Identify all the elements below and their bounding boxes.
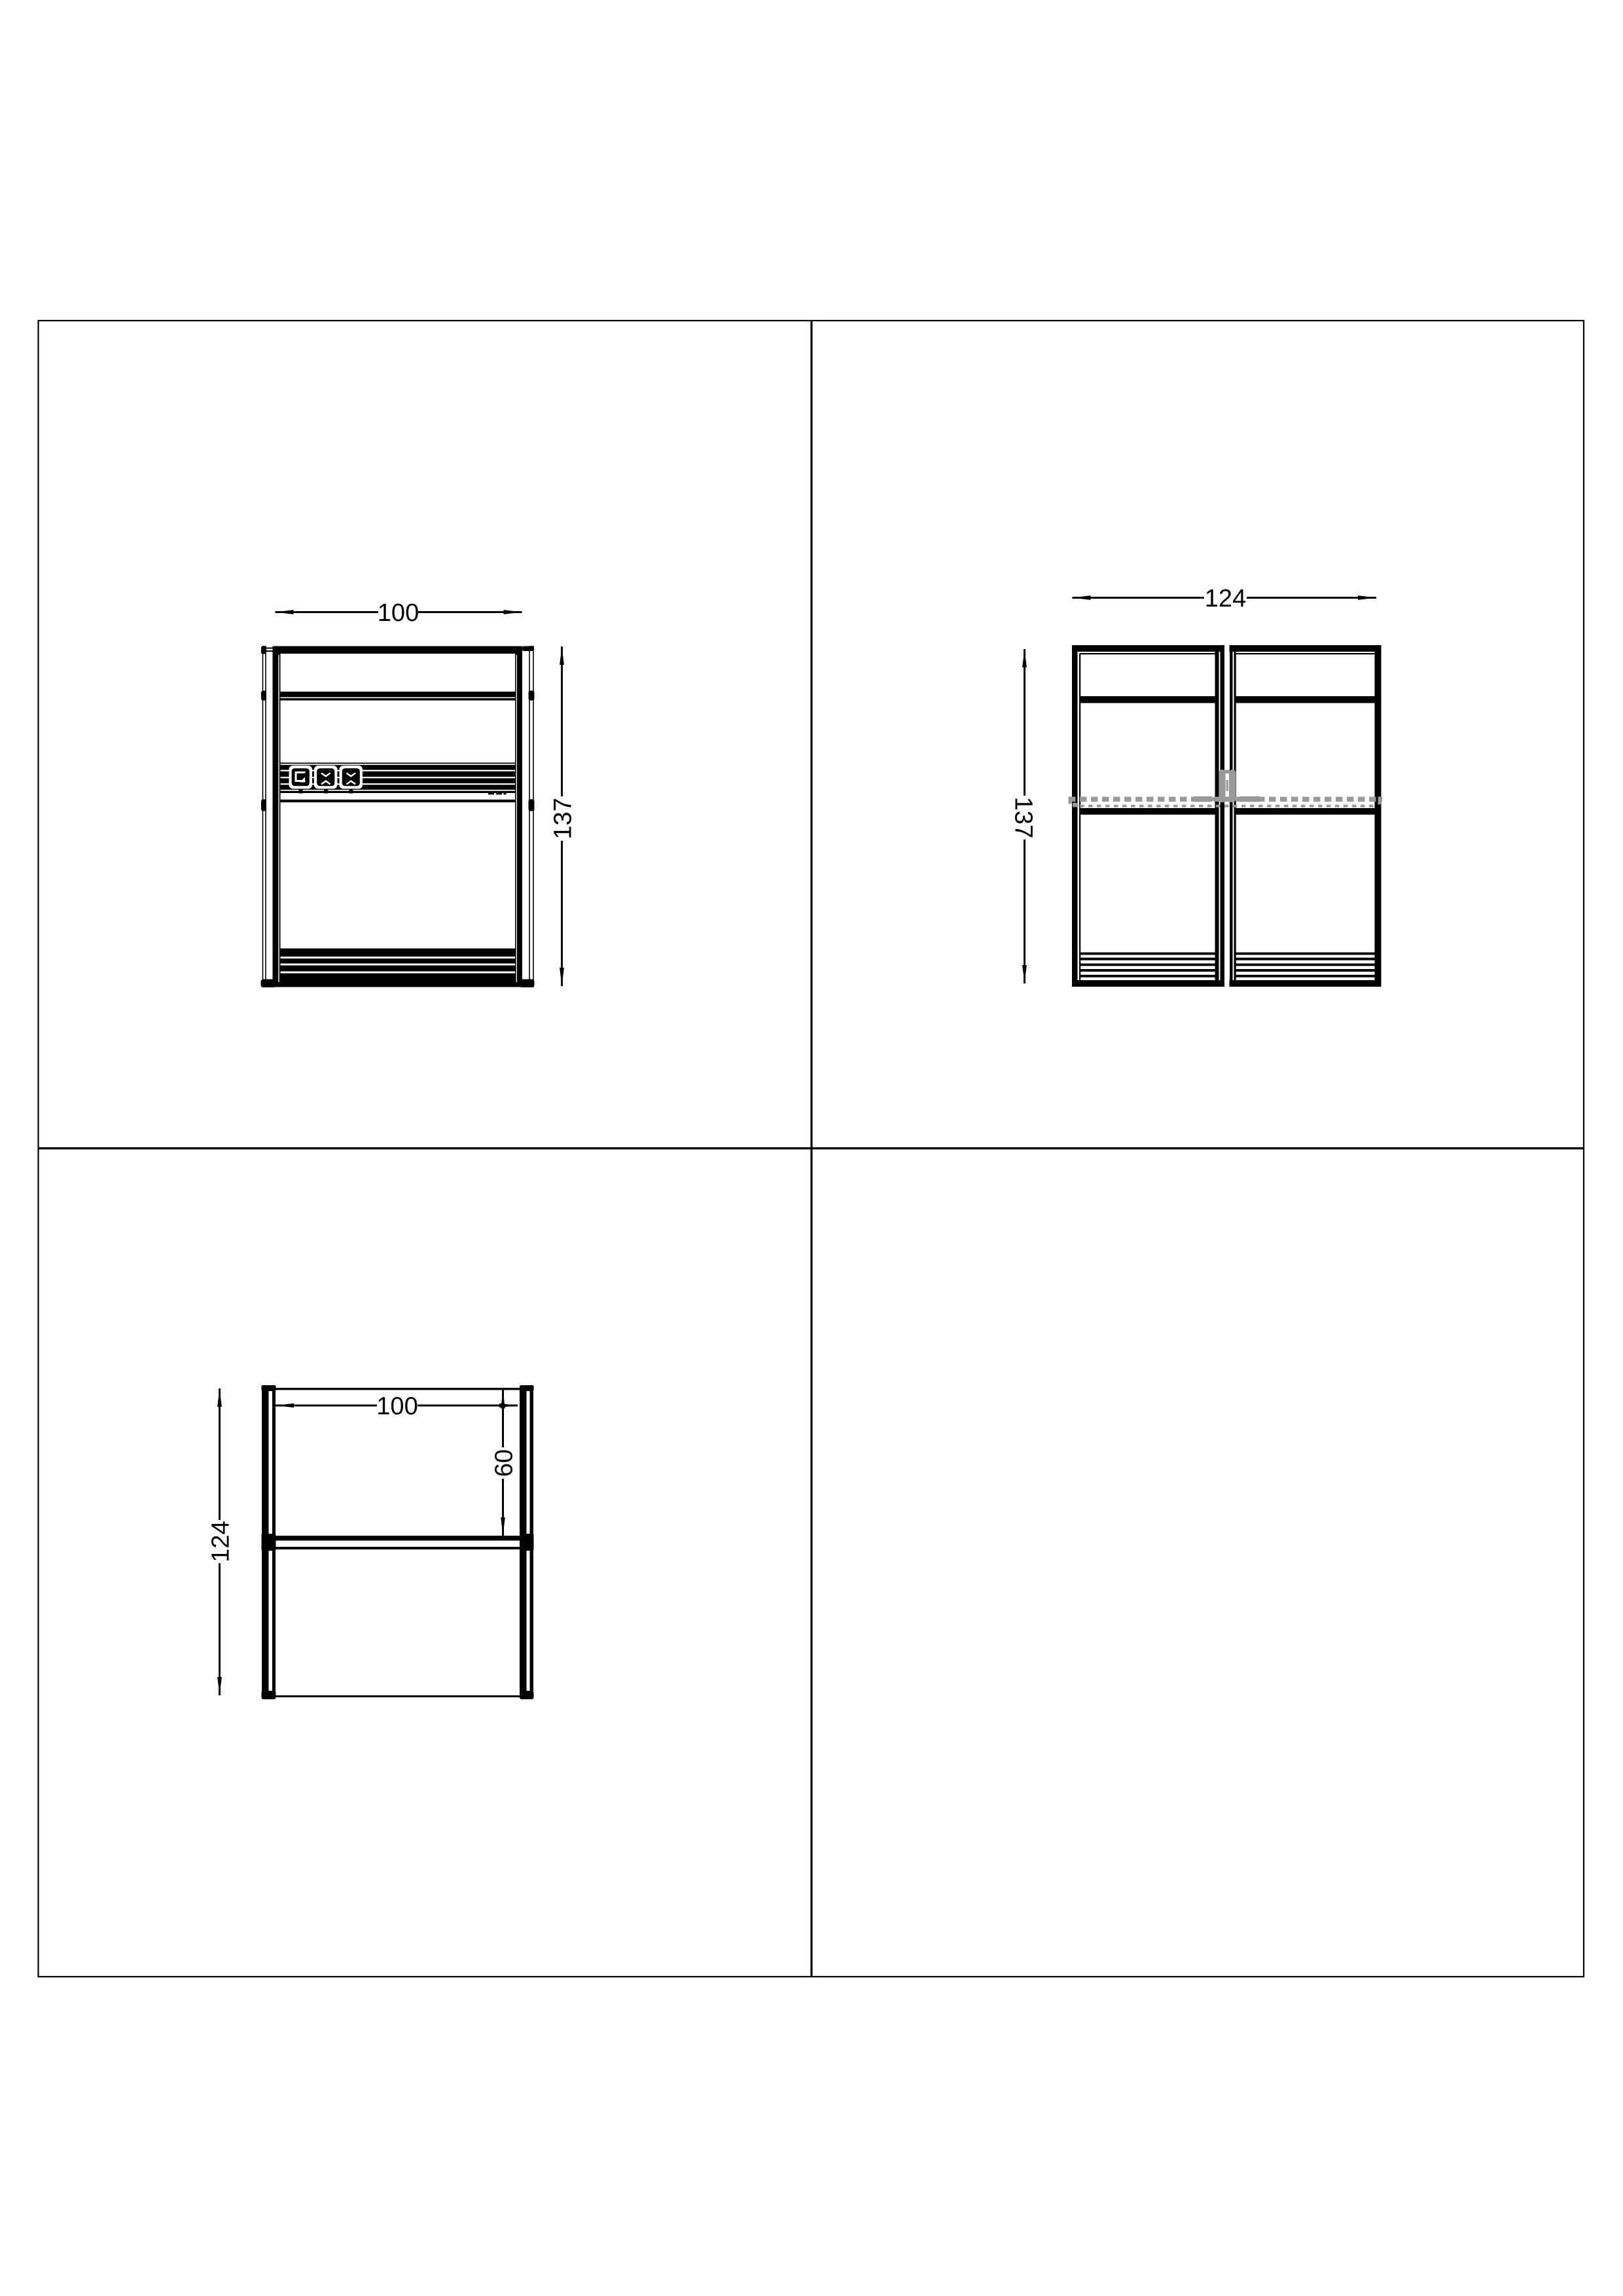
svg-text:100: 100 — [376, 1393, 418, 1421]
svg-text:124: 124 — [1205, 585, 1246, 612]
svg-text:137: 137 — [1010, 797, 1037, 838]
svg-text:124: 124 — [207, 1521, 235, 1562]
svg-text:137: 137 — [550, 798, 577, 839]
svg-text:60: 60 — [491, 1449, 518, 1477]
svg-text:100: 100 — [378, 599, 419, 627]
